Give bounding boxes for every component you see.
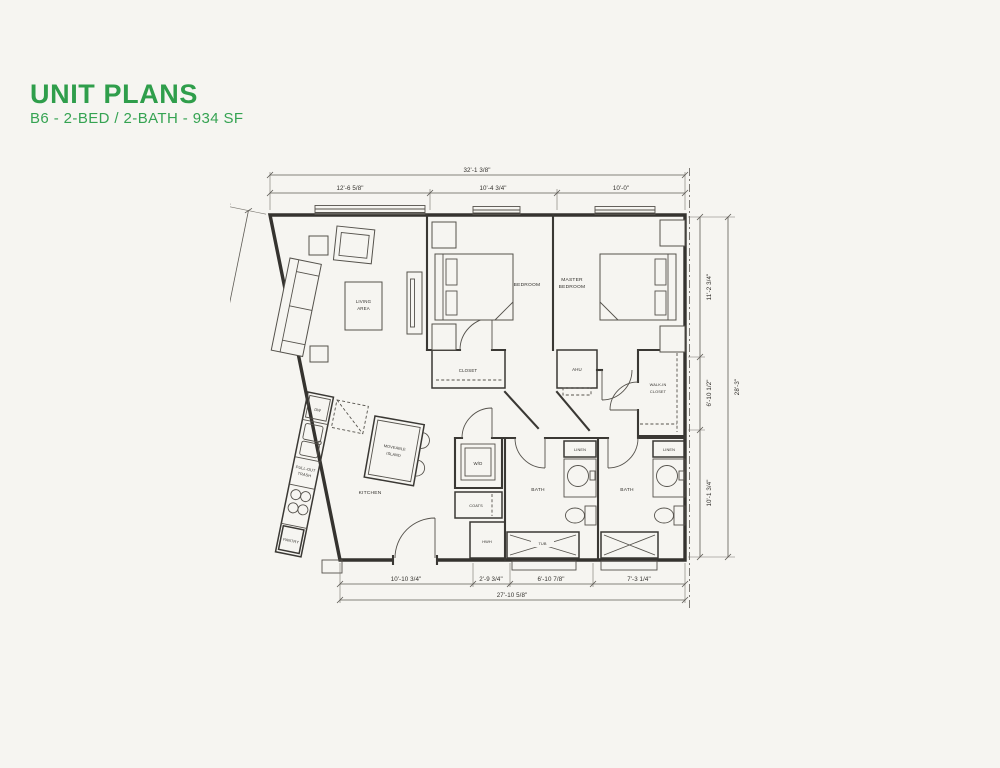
dishwasher-label: DW <box>314 407 322 413</box>
dim-top-seg-1: 12'-6 5/8" <box>336 185 363 192</box>
dim-bottom-overall: 27'-10 5/8" <box>497 592 528 599</box>
bedroom-label: BEDROOM <box>514 282 541 288</box>
page-subtitle: B6 - 2-BED / 2-BATH - 934 SF <box>30 110 243 127</box>
kitchen-label: KITCHEN <box>359 490 382 496</box>
dim-right-seg-2: 6'-10 1/2" <box>706 379 713 406</box>
dim-bottom-seg-4: 7'-3 1/4" <box>627 576 651 583</box>
dim-right-overall: 28'-3" <box>734 379 741 395</box>
dimensions-bottom: 10'-10 3/4" 2'-9 3/4" 6'-10 7/8" 7'-3 1/… <box>337 563 688 603</box>
dim-top-overall: 32'-1 3/8" <box>463 167 490 174</box>
dimensions-right: 11'-2 3/4" 6'-10 1/2" 10'-1 3/4" 28'-3" <box>688 214 741 560</box>
moveable-island: MOVEABLE ISLAND <box>364 416 432 487</box>
dim-top-seg-2: 10'-4 3/4" <box>479 185 506 192</box>
dim-top-seg-3: 10'-0" <box>613 185 629 192</box>
ahu-closet: AHU <box>557 350 597 395</box>
bath-2-label: BATH <box>620 487 634 493</box>
coats-label: COATS <box>469 503 483 508</box>
title-block: UNIT PLANS B6 - 2-BED / 2-BATH - 934 SF <box>30 80 243 127</box>
dimensions-top: 32'-1 3/8" 12'-6 5/8" 10'-4 3/4" 10'-0" <box>267 167 688 210</box>
island-label-2: ISLAND <box>386 451 401 458</box>
dim-right-seg-3: 10'-1 3/4" <box>706 479 713 506</box>
living-area-label-1: LIVING <box>356 299 372 304</box>
dim-bottom-seg-3: 6'-10 7/8" <box>537 576 564 583</box>
bedroom-furniture: BEDROOM <box>432 222 540 350</box>
tub-label: TUB <box>538 541 546 546</box>
walk-in-closet-label-2: CLOSET <box>650 389 667 394</box>
closet-label: CLOSET <box>459 368 478 373</box>
bath-2: LINEN BATH <box>601 438 685 558</box>
dim-right-seg-1: 11'-2 3/4" <box>706 274 713 301</box>
windows <box>315 206 655 215</box>
entry-door <box>393 518 437 564</box>
wd-label: W/D <box>474 461 483 466</box>
wd-closet: W/D <box>455 408 502 488</box>
coats-closet: COATS <box>455 492 502 518</box>
dim-bottom-seg-1: 10'-10 3/4" <box>391 576 422 583</box>
linen-2-label: LINEN <box>663 447 675 452</box>
living-area-label-2: AREA <box>357 306 370 311</box>
master-bedroom-label-2: BEDROOM <box>559 284 586 290</box>
walk-in-closet-label-1: WALK-IN <box>650 382 667 387</box>
unit-plan-sheet: UNIT PLANS B6 - 2-BED / 2-BATH - 934 SF <box>0 0 1000 768</box>
living-furniture: LIVING AREA <box>271 226 422 362</box>
floor-plan: CLOSET AHU WALK-IN CLOSET W/D <box>230 160 750 620</box>
hwh-closet: HWH <box>470 522 505 558</box>
master-bedroom-furniture: MASTER BEDROOM <box>559 220 685 352</box>
hwh-label: HWH <box>482 539 492 544</box>
dimensions-left: 14'-8 1/4" 13'-11 7/8" 28'-8 1/8" <box>230 201 267 562</box>
bath-1-label: BATH <box>531 487 545 493</box>
ahu-label: AHU <box>572 367 582 372</box>
linen-1-label: LINEN <box>574 447 586 452</box>
bath-1: LINEN TUB BATH <box>507 438 596 558</box>
master-bedroom-label-1: MASTER <box>561 277 583 283</box>
bedroom-closet: CLOSET <box>432 350 505 388</box>
pantry-label: PANTRY <box>283 537 300 545</box>
dim-bottom-seg-2: 2'-9 3/4" <box>479 576 503 583</box>
page-title: UNIT PLANS <box>30 80 243 108</box>
